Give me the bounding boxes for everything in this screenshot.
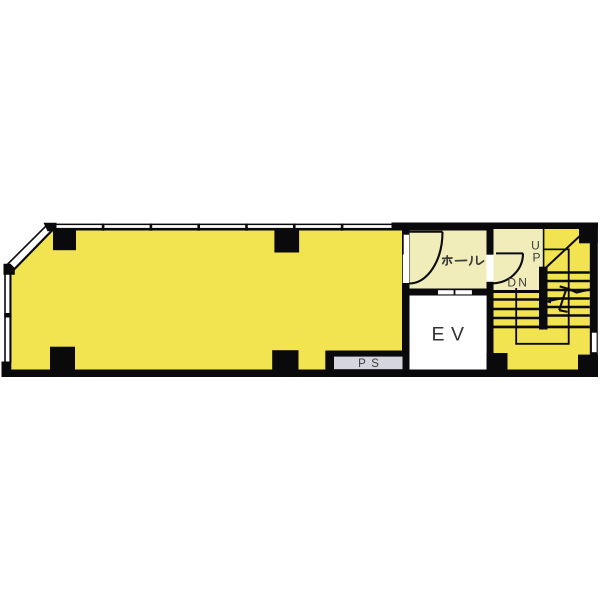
svg-text:DN: DN bbox=[507, 275, 529, 289]
svg-text:EV: EV bbox=[431, 324, 470, 346]
svg-text:P: P bbox=[532, 251, 540, 265]
svg-text:PS: PS bbox=[358, 358, 384, 370]
